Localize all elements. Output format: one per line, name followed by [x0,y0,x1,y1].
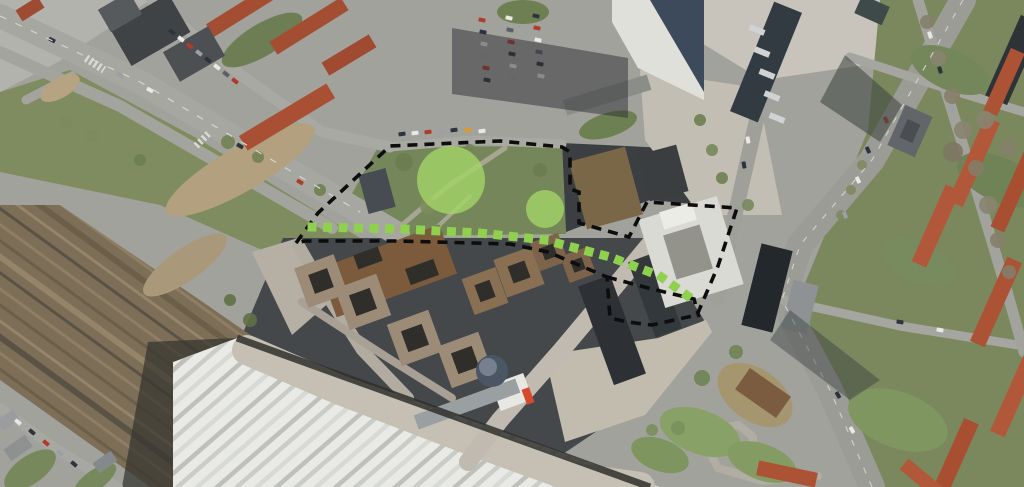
route-dot [369,224,378,233]
tree-canopy [742,199,754,211]
tree-canopy [954,121,972,139]
tree-canopy [694,114,706,126]
tree-canopy [252,151,264,163]
tree-canopy [59,115,73,129]
tree-canopy [944,88,960,104]
tree-canopy [646,424,658,436]
aerial-map [0,0,1024,487]
tree-canopy [857,160,867,170]
route-dot [338,223,347,232]
route-dot [447,227,456,236]
route-dot [508,232,518,242]
aerial-map-svg [0,0,1024,487]
tree-canopy [979,196,997,214]
tree-canopy [533,163,547,177]
tree-canopy [968,160,984,176]
tree-canopy [920,15,934,29]
route-dot [354,223,363,232]
tree-canopy [729,345,743,359]
tree-canopy [694,370,710,386]
route-dot [462,228,471,237]
tree-canopy [930,50,946,66]
tree-canopy-circle [526,190,564,228]
tree-canopy [224,294,236,306]
tree-canopy [1000,140,1016,156]
tree-canopy [846,185,856,195]
ground-patch [497,0,549,24]
route-dot [493,230,503,240]
tree-canopy [671,421,685,435]
tree-canopy [1002,265,1016,279]
tree-canopy [943,142,963,162]
route-dot [431,226,440,235]
tree-canopy [243,313,257,327]
route-dot [307,222,316,231]
tree-canopy [86,130,98,142]
dome-roof [479,358,497,376]
tree-canopy [716,172,728,184]
route-dot [400,224,409,233]
tree-canopy [976,111,994,129]
route-dot [524,233,534,243]
route-dot [416,225,425,234]
tree-canopy [706,144,718,156]
route-dot [539,235,549,245]
tree-canopy [395,153,413,171]
tree-canopy [990,232,1006,248]
route-dot [477,228,487,238]
tree-canopy [221,135,235,149]
tree-canopy-circle [417,146,485,214]
route-dot [385,224,394,233]
route-dot [323,223,332,232]
tree-canopy [134,154,146,166]
